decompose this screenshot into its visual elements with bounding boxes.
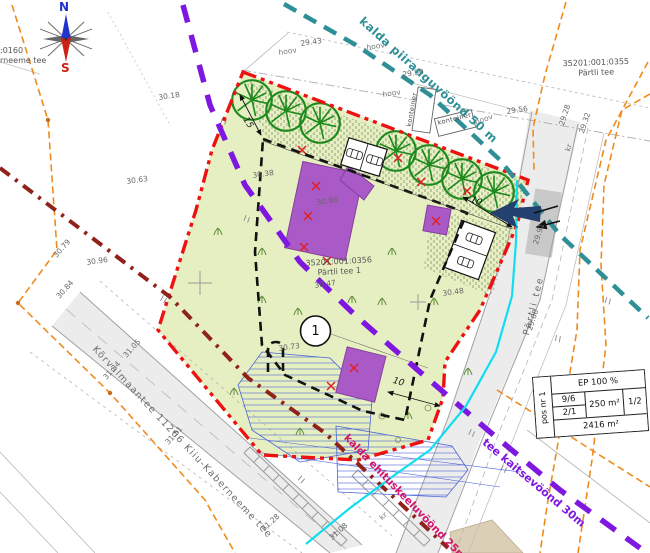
pos-number: 1 [307, 324, 324, 339]
compass-north-label: N [59, 0, 69, 14]
parcel-id: :0160 [0, 46, 46, 56]
table-building-area: 250 m² [584, 389, 624, 418]
parcel-label-north: 35201:001:0355 Pärtli tee [546, 56, 647, 79]
plot-info-table: pos nr 1 EP 100 % 9/6 2/1 250 m² 1/2 241… [532, 369, 649, 439]
compass-south-label: S [61, 61, 70, 75]
pos-nr-label: pos nr 1 [538, 391, 549, 424]
parcel-label-west: :0160 rneeme tee [0, 46, 46, 65]
parcel-name: rneeme tee [0, 56, 46, 66]
compass-rose-icon [40, 14, 92, 62]
table-cell-12: 1/2 [622, 387, 647, 415]
detail-plan-drawing: 29.4329.5029.5630.1830.6330.9630.3830.86… [0, 0, 650, 553]
